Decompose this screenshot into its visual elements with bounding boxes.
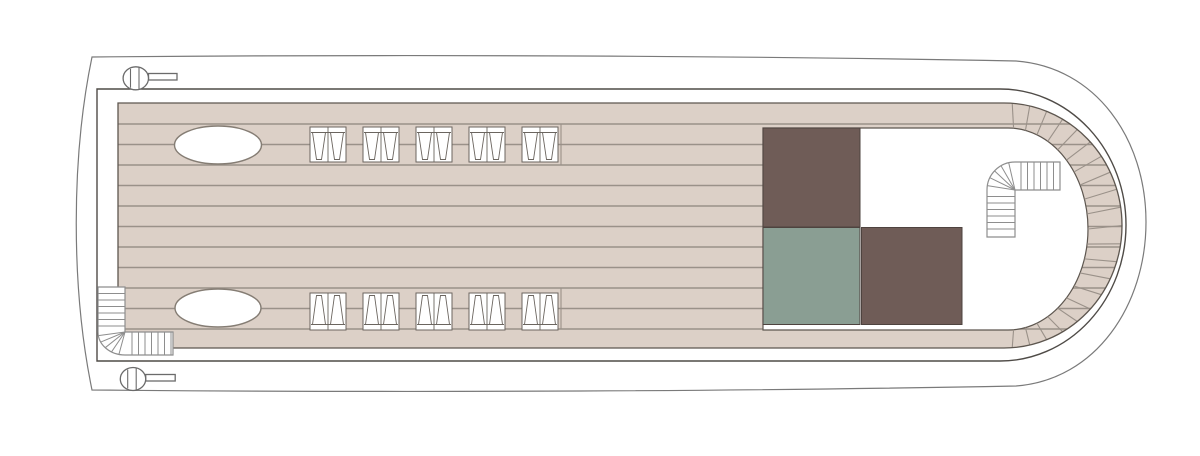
deckhouse-block-bottom xyxy=(862,228,963,325)
deck-plan-svg xyxy=(0,0,1200,456)
bollard-handle xyxy=(149,74,178,81)
bollard-drum xyxy=(120,368,145,391)
sun-lounger xyxy=(363,293,399,330)
sun-lounger xyxy=(469,293,505,330)
deckhouse-block-green xyxy=(763,228,860,325)
deck-plan-canvas xyxy=(0,0,1200,456)
bollard-handle xyxy=(146,375,176,382)
sun-lounger xyxy=(522,127,558,162)
skylight-top xyxy=(175,126,262,164)
sun-lounger xyxy=(416,127,452,162)
sun-lounger xyxy=(363,127,399,162)
sun-lounger xyxy=(416,293,452,330)
sun-lounger xyxy=(310,293,346,330)
deckhouse-block-top xyxy=(763,128,860,227)
sun-lounger xyxy=(469,127,505,162)
skylight-bottom xyxy=(175,289,261,327)
sun-lounger xyxy=(310,127,346,162)
bollard-drum xyxy=(123,67,148,90)
sun-lounger xyxy=(522,293,558,330)
